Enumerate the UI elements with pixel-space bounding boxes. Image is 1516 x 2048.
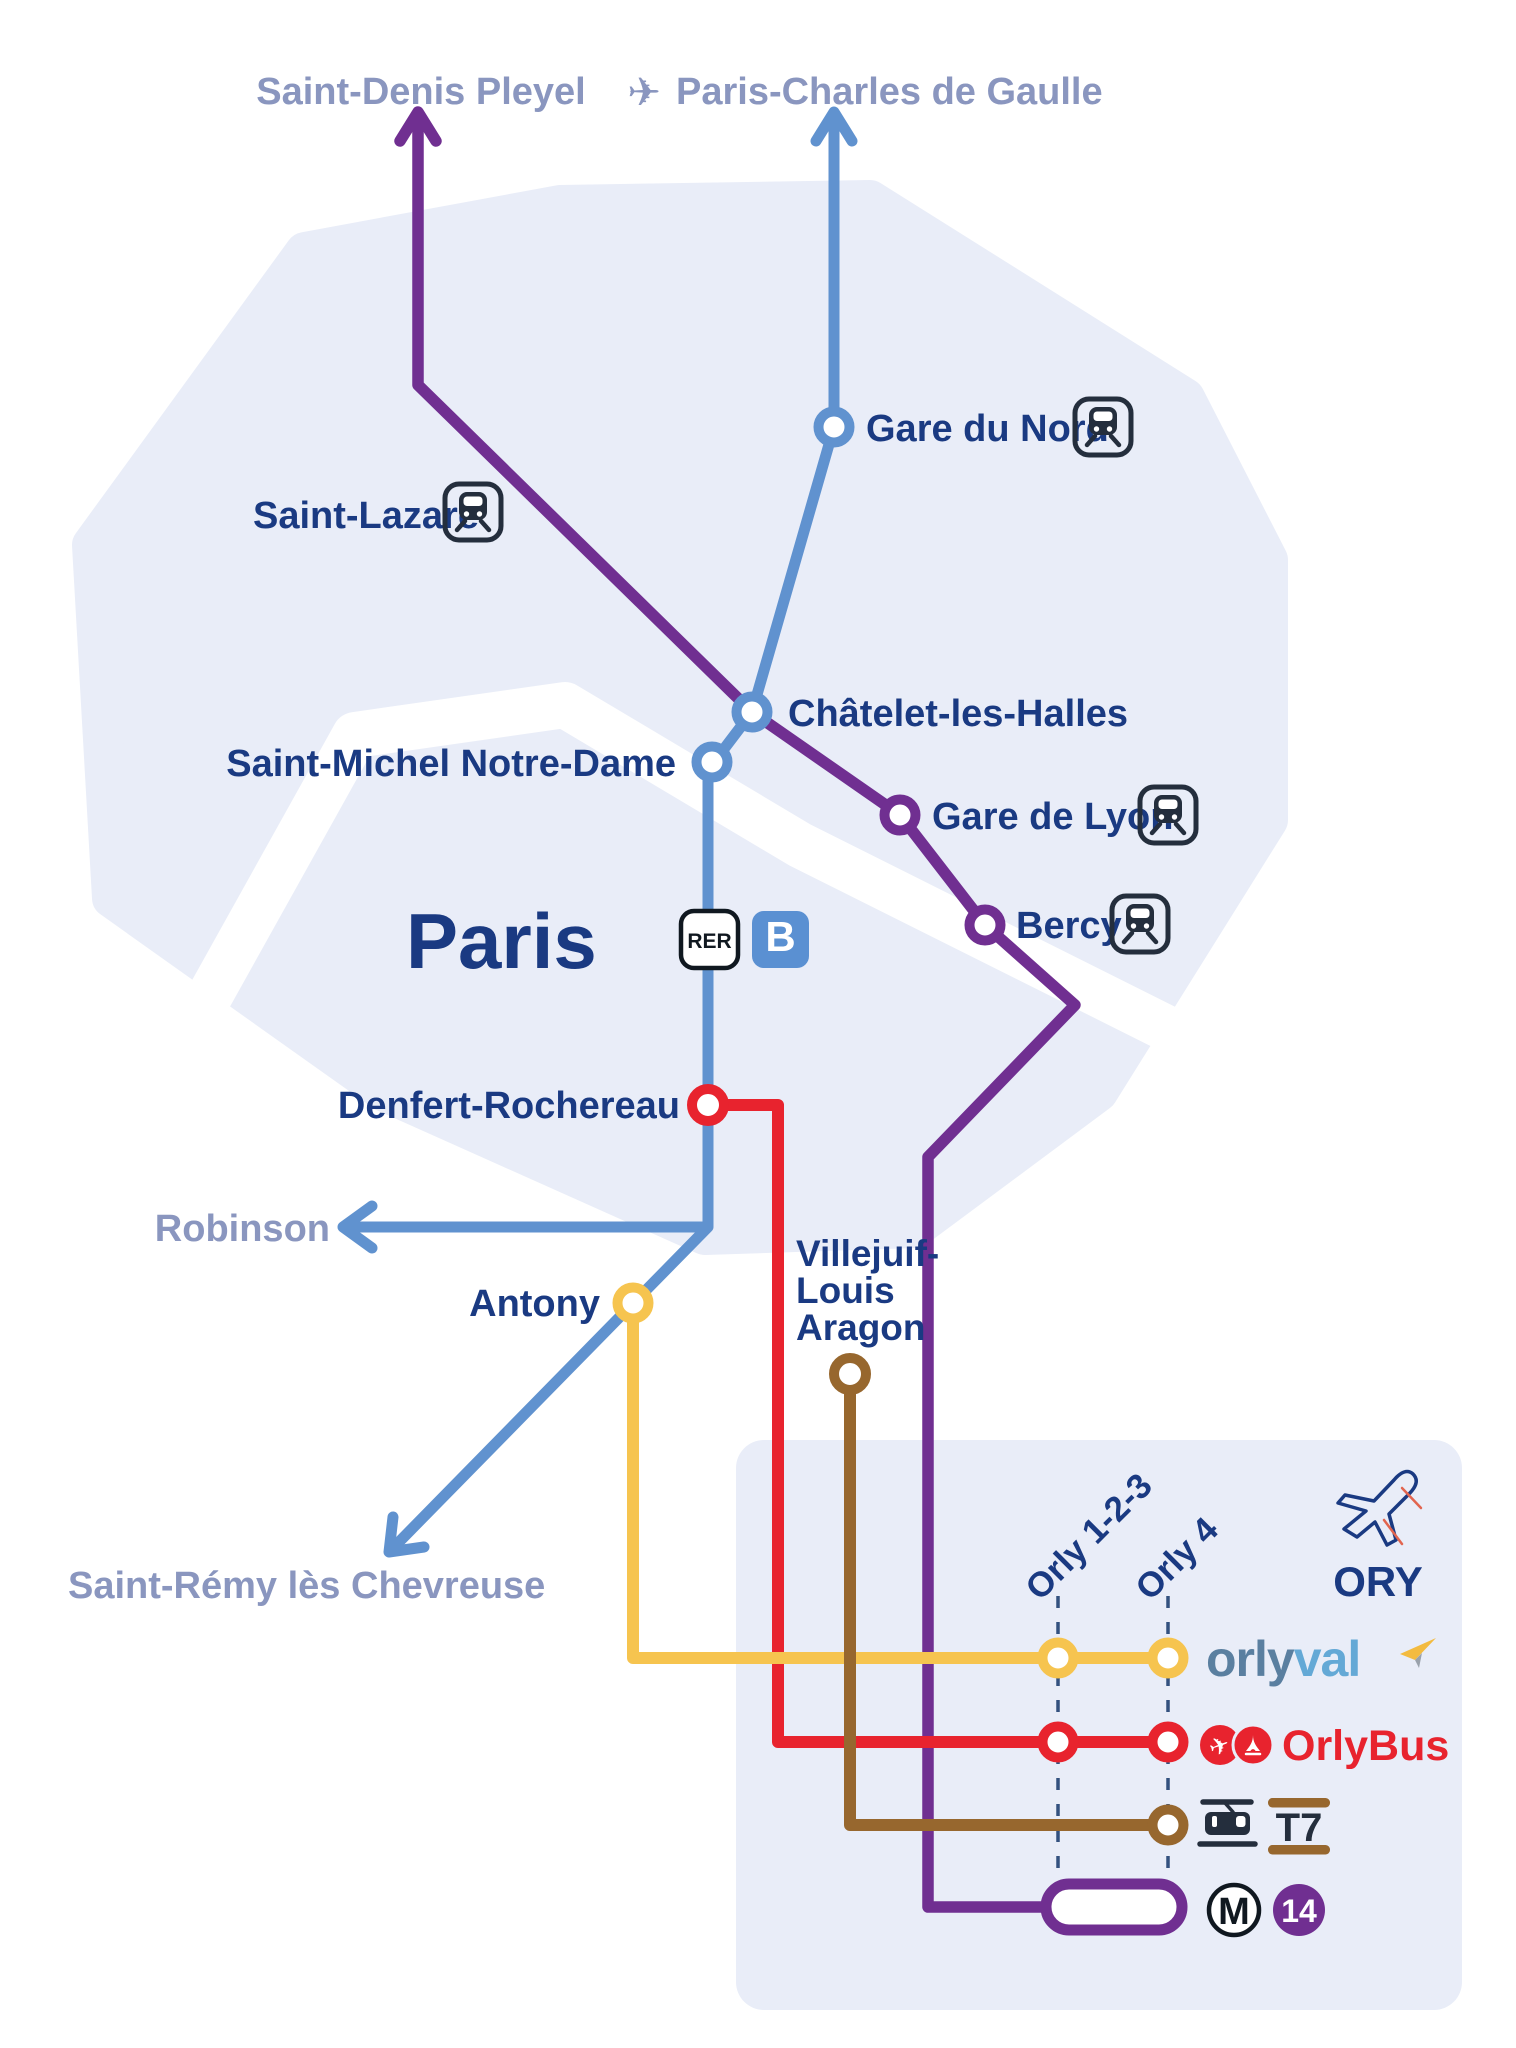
t7-line-badge: T7 [1268, 1798, 1330, 1855]
orly-access-transit-map: Saint-Denis Pleyel ✈ Paris-Charles de Ga… [0, 0, 1516, 2048]
station-label-villejuif-1: Villejuif- [796, 1233, 939, 1274]
orlybus-logo-text: OrlyBus [1282, 1722, 1449, 1770]
plane-icon: ✈ [627, 71, 661, 115]
station-label-chatelet: Châtelet-les-Halles [788, 693, 1128, 735]
t7-line-badge-label: T7 [1276, 1806, 1323, 1850]
station-label-villejuif-3: Aragon [796, 1307, 926, 1348]
station-dot-orlyval-orly123 [1043, 1643, 1074, 1674]
station-dot-gare-de-lyon [885, 800, 916, 831]
station-dot-saint-michel [697, 747, 728, 778]
station-dot-chatelet [737, 697, 768, 728]
rer-b-badge-label: B [765, 913, 795, 960]
rer-badge-label: RER [687, 930, 731, 953]
station-dot-gare-du-nord [819, 412, 850, 443]
station-label-denfert: Denfert-Rochereau [338, 1085, 680, 1127]
station-dot-orlybus-orly123 [1043, 1727, 1074, 1758]
station-label-bercy: Bercy [1016, 905, 1122, 947]
station-dot-orlybus-orly4 [1153, 1727, 1184, 1758]
airport-code-label: ORY [1333, 1558, 1422, 1605]
terminus-label-saint-remy: Saint-Rémy lès Chevreuse [68, 1565, 545, 1607]
station-dot-antony [618, 1288, 649, 1319]
transit-map-page: Saint-Denis Pleyel ✈ Paris-Charles de Ga… [0, 0, 1516, 2048]
terminus-label-cdg: Paris-Charles de Gaulle [676, 71, 1103, 113]
station-label-saint-michel: Saint-Michel Notre-Dame [226, 743, 676, 785]
station-label-gare-de-lyon: Gare de Lyon [932, 796, 1173, 838]
station-dot-villejuif [834, 1358, 866, 1390]
region-label-paris: Paris [406, 897, 597, 985]
station-dot-bercy [970, 910, 1001, 941]
orlyval-logo-orly: orly [1206, 1631, 1295, 1687]
station-dot-t7-orly4 [1153, 1810, 1184, 1841]
orlyval-logo-val: val [1294, 1631, 1361, 1687]
terminus-label-saint-denis: Saint-Denis Pleyel [256, 71, 585, 113]
station-label-antony: Antony [469, 1283, 600, 1325]
station-label-villejuif-2: Louis [796, 1270, 895, 1311]
metro-badge-label: M [1218, 1891, 1250, 1933]
station-dot-denfert [692, 1089, 724, 1121]
metro-14-badge-label: 14 [1281, 1893, 1317, 1929]
terminus-label-robinson: Robinson [155, 1208, 330, 1250]
station-label-gare-du-nord: Gare du Nord [866, 408, 1109, 450]
station-dot-orlyval-orly4 [1153, 1643, 1184, 1674]
metro-14-orly-station-pill [1046, 1884, 1182, 1930]
orlyval-logo: orlyval [1206, 1631, 1360, 1687]
